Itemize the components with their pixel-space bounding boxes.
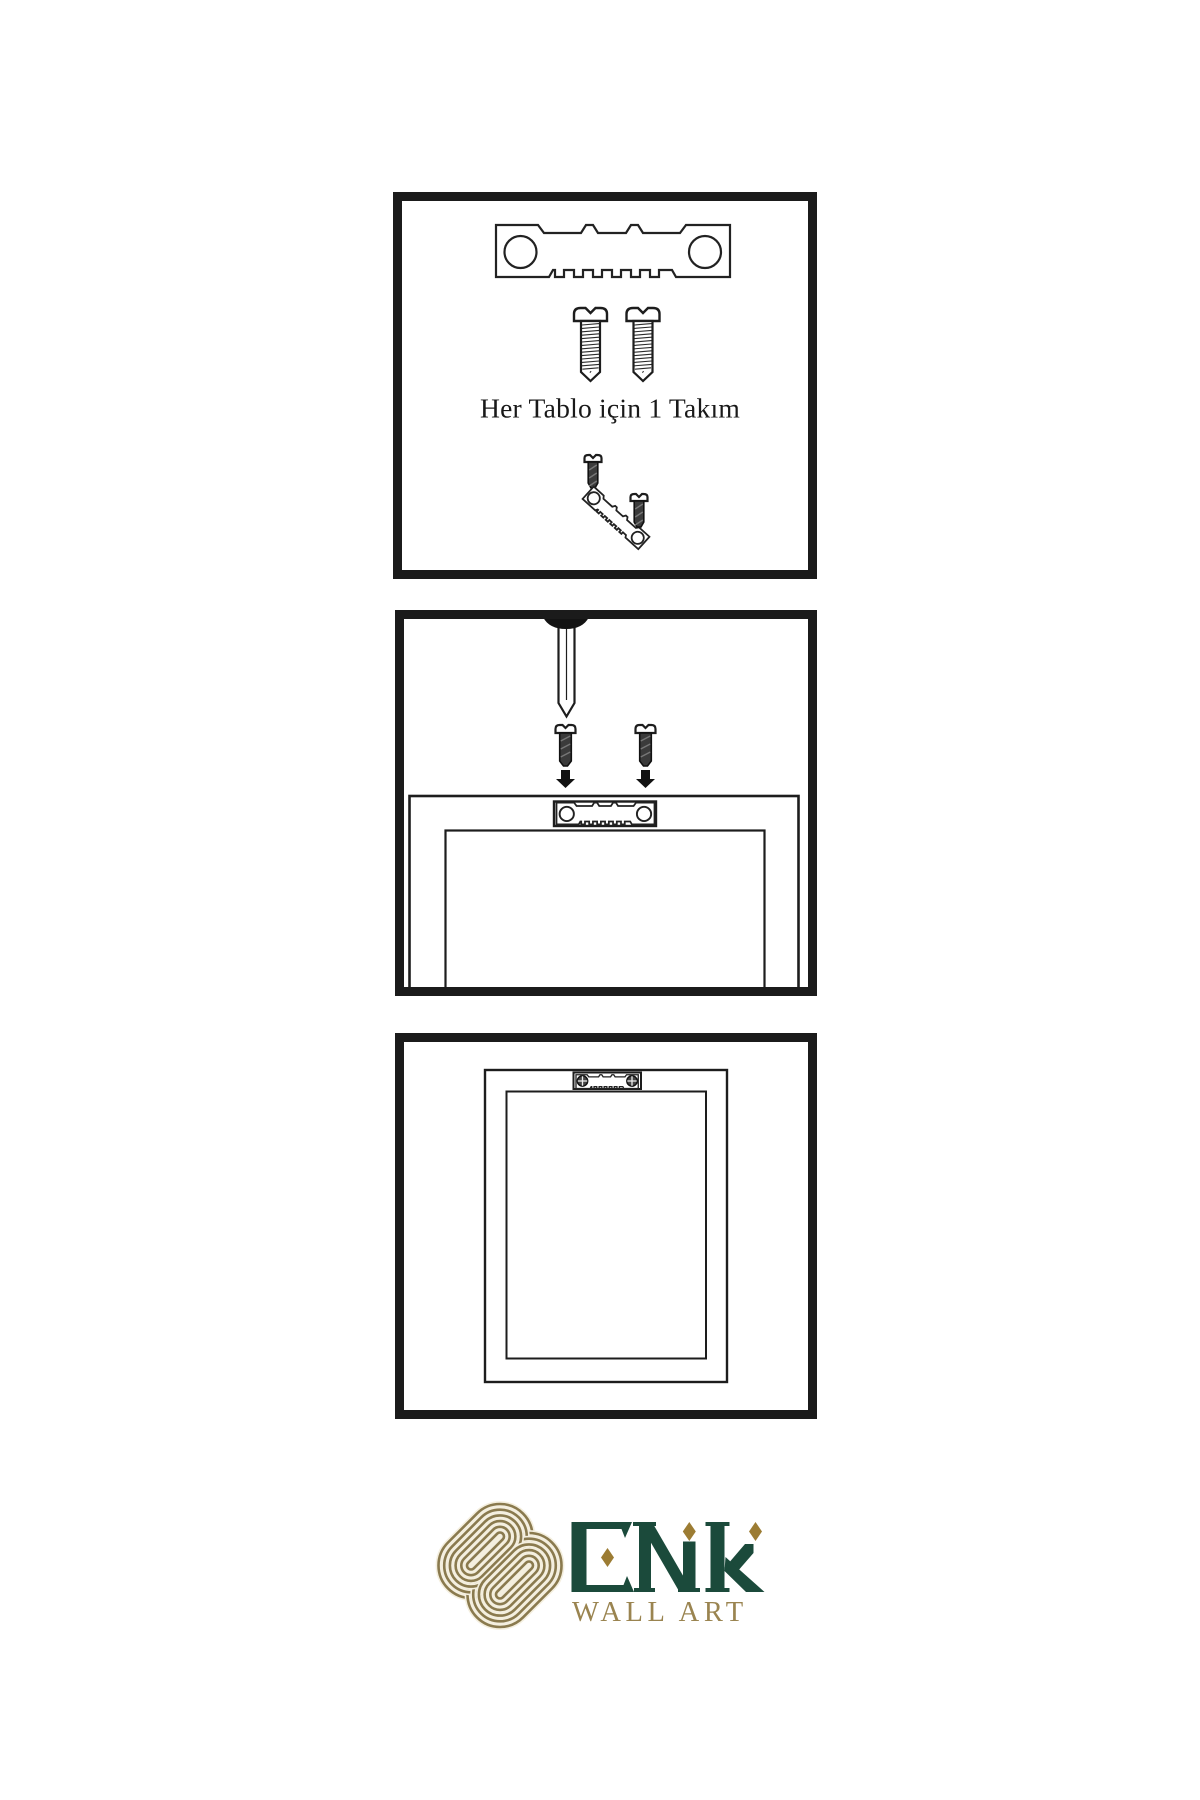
svg-text:Her Tablo için 1 Takım: Her Tablo için 1 Takım (480, 393, 740, 424)
svg-text:WALL ART: WALL ART (572, 1597, 748, 1628)
